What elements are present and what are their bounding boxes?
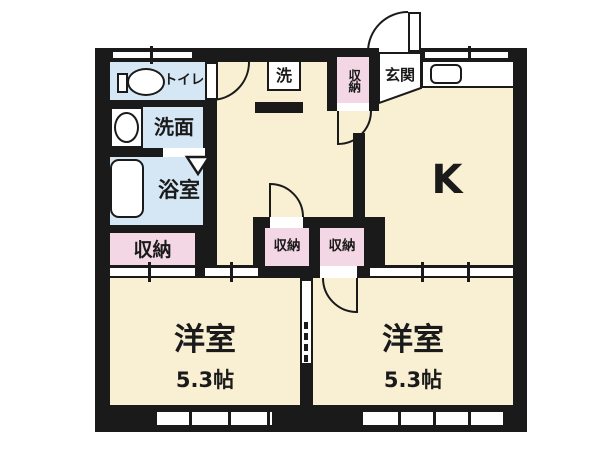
window-tick — [150, 46, 153, 64]
room-left-label: 洋室 — [130, 320, 280, 360]
laundry-box: 洗 — [267, 60, 301, 91]
room-right-label: 洋室 — [338, 320, 488, 360]
room-left-size: 5.3帖 — [130, 366, 280, 394]
door-tick — [230, 262, 233, 282]
outer-wall-right — [513, 48, 527, 432]
kitchen-label: K — [423, 156, 471, 204]
floorplan: 収納 収納 収納 洗 — [0, 0, 600, 450]
outer-wall-left — [95, 48, 110, 432]
bathtub-icon — [110, 159, 144, 218]
window-bottom-left — [157, 410, 272, 427]
washroom-label: 洗面 — [142, 114, 206, 140]
door-tick — [467, 262, 470, 282]
wall-below-laundry — [255, 102, 303, 113]
storage-entrance-opening — [337, 103, 369, 111]
washbasin-icon — [114, 112, 139, 143]
room-right-size: 5.3帖 — [338, 366, 488, 394]
sliding-door-dash — [304, 322, 308, 329]
window-top-left — [113, 50, 192, 60]
sliding-door-dash — [304, 355, 308, 362]
window-tick — [468, 406, 471, 431]
toilet-label: トイレ — [158, 70, 210, 92]
room-right-door-opening — [320, 266, 357, 278]
bathroom-door-opening — [163, 148, 205, 157]
wall — [110, 225, 205, 233]
window-tick — [433, 406, 436, 431]
window-tick — [228, 406, 231, 431]
storage-entrance-room: 収納 — [337, 57, 369, 103]
bathroom-label: 浴室 — [148, 176, 210, 204]
window-tick — [189, 406, 192, 431]
door-tick — [421, 262, 424, 282]
entrance-label: 玄関 — [377, 60, 423, 90]
sliding-door-dash — [304, 344, 308, 351]
storage-hall-label: 収納 — [112, 236, 193, 264]
storage-mid-left-room: 収納 — [265, 228, 309, 266]
storage-hall-door — [110, 266, 195, 278]
window-top-right — [425, 50, 508, 60]
kitchen-sink-icon — [430, 64, 462, 84]
kitchen-room-sliding-door — [370, 266, 513, 278]
entrance-door-arc — [368, 12, 408, 52]
sliding-door-dash — [304, 333, 308, 340]
entrance-door-leaf — [408, 12, 421, 52]
door-tick — [148, 262, 151, 282]
storage-mid-right-room: 収納 — [320, 228, 364, 266]
wall-hall-kitchen — [353, 133, 365, 218]
storage-pair-door-opening — [270, 217, 303, 228]
window-tick — [267, 406, 270, 431]
wall — [110, 100, 205, 107]
window-tick — [398, 406, 401, 431]
